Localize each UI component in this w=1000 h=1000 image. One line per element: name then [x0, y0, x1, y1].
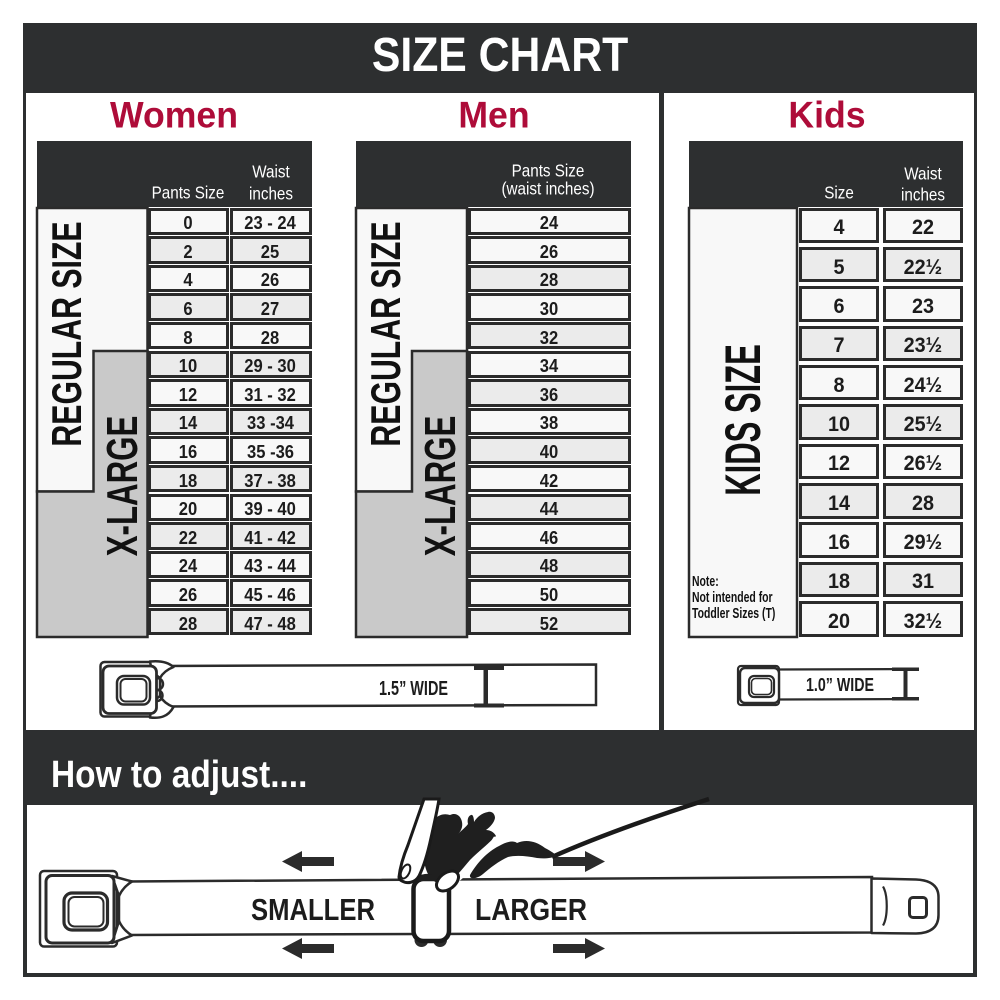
svg-text:1.5” WIDE: 1.5” WIDE: [379, 678, 448, 700]
svg-text:1.0” WIDE: 1.0” WIDE: [806, 674, 874, 695]
svg-text:LARGER: LARGER: [475, 892, 587, 927]
svg-text:SMALLER: SMALLER: [251, 892, 375, 927]
